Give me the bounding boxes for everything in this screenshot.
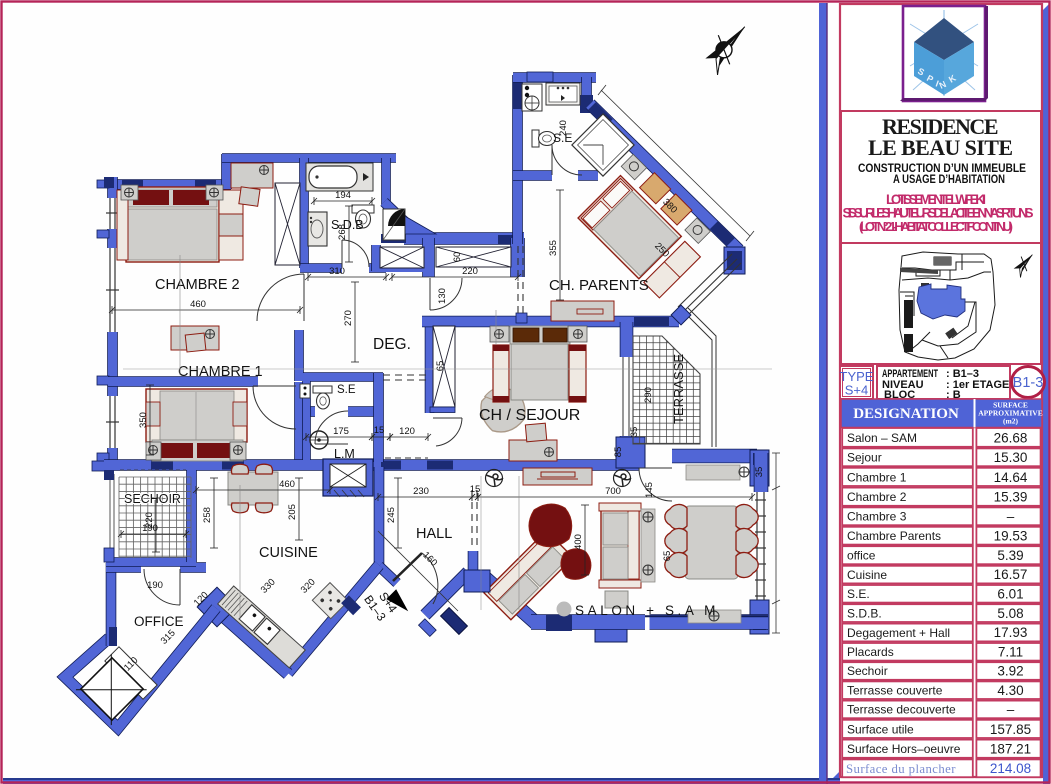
svg-text:214.08: 214.08 — [990, 761, 1031, 776]
svg-text:(m2): (m2) — [1003, 417, 1018, 426]
svg-text:Sejour: Sejour — [847, 451, 882, 465]
svg-text:Chambre 2: Chambre 2 — [847, 490, 907, 504]
svg-text:400: 400 — [573, 534, 584, 550]
svg-text:205: 205 — [287, 504, 298, 520]
svg-text:Chambre 1: Chambre 1 — [847, 470, 907, 484]
svg-text:19.53: 19.53 — [994, 528, 1028, 543]
svg-text:Placards: Placards — [847, 645, 894, 659]
svg-text:5.39: 5.39 — [997, 548, 1023, 563]
svg-text:60: 60 — [452, 252, 463, 263]
svg-text:Chambre 3: Chambre 3 — [847, 510, 907, 524]
svg-text:85: 85 — [613, 447, 624, 458]
svg-text:15: 15 — [470, 484, 481, 495]
svg-text:CHAMBRE 2: CHAMBRE 2 — [155, 277, 240, 293]
svg-text:310: 310 — [329, 266, 345, 277]
svg-text:460: 460 — [279, 479, 295, 490]
svg-text:B1-3: B1-3 — [1013, 375, 1044, 391]
svg-text:–: – — [1007, 702, 1015, 717]
svg-text:16.57: 16.57 — [994, 567, 1028, 582]
svg-text:Sechoir: Sechoir — [847, 664, 888, 678]
svg-text:145: 145 — [644, 482, 655, 498]
svg-text:15.39: 15.39 — [994, 490, 1028, 505]
svg-text:26.68: 26.68 — [994, 431, 1028, 446]
svg-text:Salon – SAM: Salon – SAM — [847, 431, 917, 445]
svg-text:17.93: 17.93 — [994, 625, 1028, 640]
svg-text:460: 460 — [190, 299, 206, 310]
svg-text:S.E.: S.E. — [847, 587, 870, 601]
svg-text:7.11: 7.11 — [998, 644, 1023, 659]
svg-text:194: 194 — [335, 190, 351, 201]
svg-text:Cuisine: Cuisine — [847, 568, 887, 582]
svg-text:268: 268 — [337, 224, 348, 240]
svg-text:350: 350 — [138, 412, 149, 428]
svg-text:65: 65 — [435, 361, 446, 372]
svg-text:Surface Hors–oeuvre: Surface Hors–oeuvre — [847, 742, 961, 756]
svg-text:DEG.: DEG. — [373, 336, 411, 353]
svg-text:35: 35 — [754, 467, 765, 478]
svg-text:190: 190 — [142, 523, 158, 534]
svg-text:258: 258 — [202, 507, 213, 523]
svg-text:OFFICE: OFFICE — [134, 614, 184, 629]
svg-text:office: office — [847, 549, 876, 563]
svg-text:14.64: 14.64 — [994, 470, 1028, 485]
svg-text:15.30: 15.30 — [994, 450, 1028, 465]
svg-text:SECHOIR: SECHOIR — [124, 492, 181, 506]
svg-text:Chambre Parents: Chambre Parents — [847, 529, 941, 543]
svg-text:4.30: 4.30 — [997, 683, 1023, 698]
svg-text:–: – — [1007, 509, 1015, 524]
svg-text:LE BEAU SITE: LE BEAU SITE — [868, 135, 1014, 160]
svg-text:Surface du plancher: Surface du plancher — [846, 762, 956, 776]
svg-text:Degagement + Hall: Degagement + Hall — [847, 626, 950, 640]
svg-text:CH / SEJOUR: CH / SEJOUR — [479, 407, 580, 424]
svg-text:L.M: L.M — [334, 447, 355, 461]
svg-text:175: 175 — [333, 426, 349, 437]
svg-text:245: 245 — [386, 507, 397, 523]
svg-text:5.08: 5.08 — [997, 606, 1023, 621]
svg-text:220: 220 — [462, 266, 478, 277]
svg-text:35: 35 — [629, 427, 640, 438]
svg-text:SALON + S.A M: SALON + S.A M — [575, 603, 719, 618]
svg-text:Terrasse couverte: Terrasse couverte — [847, 683, 943, 697]
svg-text:HALL: HALL — [416, 526, 452, 542]
svg-text:700: 700 — [605, 486, 621, 497]
svg-text:DESIGNATION: DESIGNATION — [853, 406, 959, 422]
svg-text:(LOT N°21-HABITAT COLLECTIF CO: (LOT N°21-HABITAT COLLECTIF CONTINU) — [859, 219, 1013, 234]
svg-text:Terrasse decouverte: Terrasse decouverte — [847, 703, 956, 717]
svg-text:S.D.B.: S.D.B. — [847, 606, 882, 620]
svg-text:65: 65 — [662, 551, 673, 562]
svg-text:S.E: S.E — [337, 384, 356, 396]
svg-text:240: 240 — [558, 120, 569, 136]
svg-text:3.92: 3.92 — [997, 664, 1023, 679]
svg-text:120: 120 — [399, 426, 415, 437]
svg-text:15: 15 — [374, 425, 385, 436]
svg-text:S+4: S+4 — [845, 383, 869, 398]
svg-text:290: 290 — [643, 387, 654, 403]
svg-text:355: 355 — [548, 240, 559, 256]
svg-text:230: 230 — [413, 486, 429, 497]
svg-text:130: 130 — [437, 288, 448, 304]
svg-text:190: 190 — [147, 580, 163, 591]
svg-text:Surface utile: Surface utile — [847, 722, 914, 736]
svg-text:CUISINE: CUISINE — [259, 545, 318, 561]
svg-text:TERRASSE: TERRASSE — [671, 354, 686, 424]
svg-text:A USAGE D’HABITATION: A USAGE D’HABITATION — [893, 174, 1005, 186]
svg-text:187.21: 187.21 — [990, 742, 1031, 757]
svg-text:157.85: 157.85 — [990, 722, 1031, 737]
svg-text:CHAMBRE 1: CHAMBRE 1 — [178, 364, 263, 380]
svg-text:6.01: 6.01 — [997, 586, 1023, 601]
svg-text:CH. PARENTS: CH. PARENTS — [549, 277, 649, 294]
svg-text:270: 270 — [343, 310, 354, 326]
